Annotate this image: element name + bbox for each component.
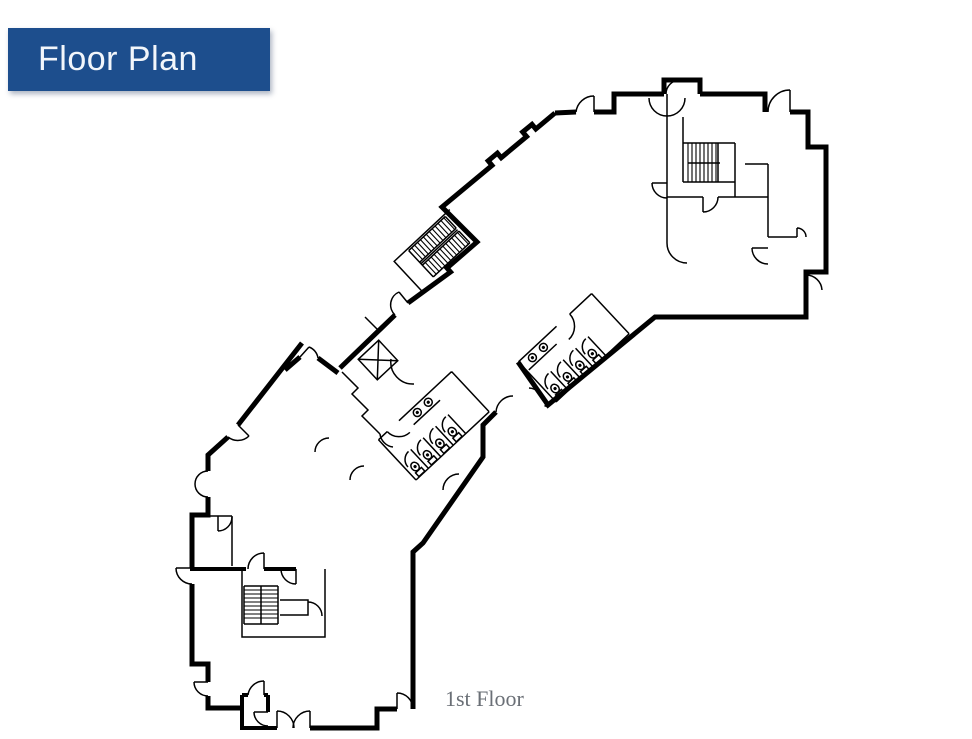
floor-plan-drawing (0, 0, 972, 739)
exterior-walls (192, 80, 826, 728)
vestibule-door-arcs (248, 681, 268, 726)
stairwell-upper-right (688, 143, 720, 182)
floor-caption: 1st Floor (445, 686, 524, 712)
entrance-vestibule (242, 681, 277, 728)
interior-walls (208, 94, 797, 637)
door-swing-arcs (176, 80, 822, 728)
restroom-lower (378, 372, 489, 480)
stall-door-arcs (521, 314, 597, 389)
stairwell-lower-left (244, 586, 278, 624)
floor-plan-page: Floor Plan (0, 0, 972, 739)
